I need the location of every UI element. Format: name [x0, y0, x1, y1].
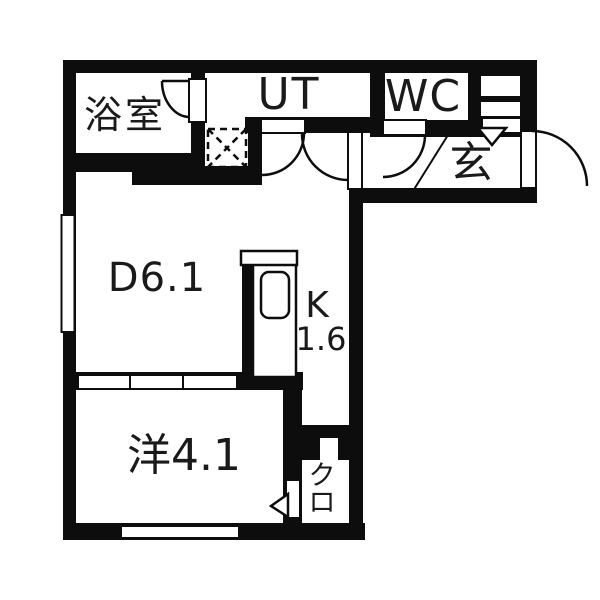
label-dining: D6.1 — [108, 258, 206, 298]
hall-entrance-door-leaf — [348, 132, 362, 189]
floorplan: 浴室 UT WC 玄 D6.1 K 1.6 洋4.1 ク ロ — [0, 0, 600, 600]
label-bathroom: 浴室 — [84, 96, 166, 134]
label-utility: UT — [257, 73, 320, 117]
shoe-cabinet-shelf-1 — [481, 76, 520, 96]
kitchen-sink — [261, 272, 289, 318]
sliding-door-dining-western — [78, 375, 237, 389]
utility-door-leaf — [261, 119, 305, 133]
closet-opening-arrow — [271, 494, 288, 517]
window-dining-left — [62, 215, 75, 332]
window-western-bottom — [121, 526, 239, 538]
bathroom-doorway — [189, 79, 206, 122]
label-kitchen-size: 1.6 — [296, 323, 347, 355]
label-wc: WC — [385, 75, 461, 119]
label-kitchen: K — [305, 288, 329, 324]
label-western-room: 洋4.1 — [127, 434, 241, 478]
shoe-cabinet-shelf-2 — [481, 102, 520, 116]
wall-closet-top — [302, 425, 349, 438]
label-closet-char1: ク — [309, 463, 336, 490]
wc-door-swing-arc — [383, 135, 425, 177]
front-door-leaf — [521, 131, 536, 188]
front-door-swing-arc — [532, 131, 587, 186]
utility-door-swing-arc — [262, 133, 304, 175]
wall-closet-top-right — [338, 438, 349, 460]
wc-door-leaf — [383, 120, 426, 135]
hall-door-swing-arc — [302, 134, 348, 180]
wall-bathroom-bottom — [63, 153, 204, 172]
washing-machine-area — [208, 129, 246, 167]
bathroom-door-swing-arc — [162, 81, 190, 117]
wall-closet-top-left — [302, 438, 320, 460]
wall-entrance-bottom — [349, 188, 537, 203]
label-entrance: 玄 — [450, 143, 493, 186]
label-closet-char2: ロ — [309, 490, 336, 517]
